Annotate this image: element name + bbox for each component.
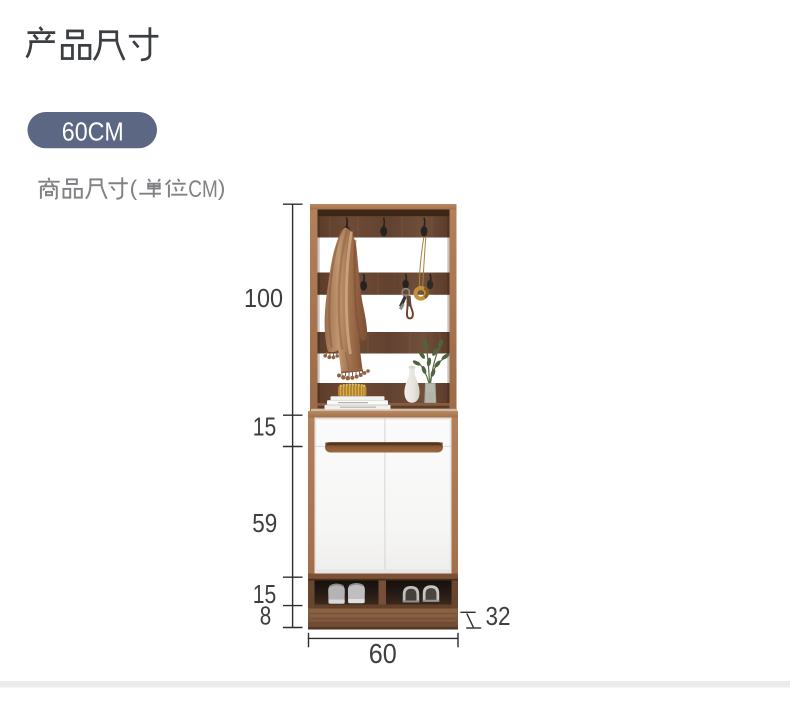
svg-text:32: 32 <box>486 601 511 631</box>
svg-text:59: 59 <box>252 508 277 538</box>
svg-text:8: 8 <box>260 601 272 631</box>
svg-text:60CM: 60CM <box>62 117 124 147</box>
svg-text:CM: CM <box>188 176 218 203</box>
svg-text:15: 15 <box>253 412 277 442</box>
svg-text:60: 60 <box>369 638 397 669</box>
svg-text:100: 100 <box>244 283 283 313</box>
svg-text:): ) <box>218 175 226 200</box>
svg-text:(: ( <box>130 175 138 200</box>
